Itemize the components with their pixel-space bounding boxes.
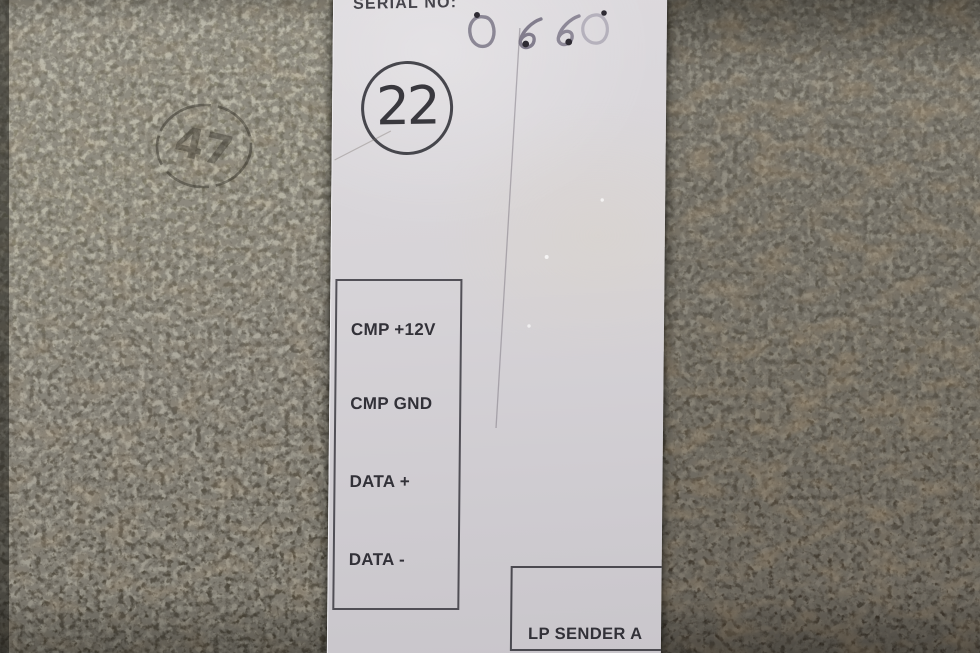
pinout-box-lp-sender: LP SENDER A <box>510 566 667 651</box>
photo-of-label-on-metal-panel: 47 SERIAL NO: 22 <box>0 0 980 653</box>
pin-label-data-minus: DATA - <box>349 550 405 570</box>
pin-label-lp-sender-a: LP SENDER A <box>528 625 643 644</box>
serial-pinout-sticker: SERIAL NO: 22 <box>327 0 667 653</box>
pin-label-cmp-12v: CMP +12V <box>351 320 436 340</box>
metal-panel-left <box>0 0 338 653</box>
pinout-box-cmp-data: CMP +12V CMP GND DATA + DATA - <box>332 279 462 610</box>
pin-label-data-plus: DATA + <box>349 472 410 492</box>
metal-panel-right <box>655 0 980 653</box>
pin-label-cmp-gnd: CMP GND <box>350 394 432 414</box>
